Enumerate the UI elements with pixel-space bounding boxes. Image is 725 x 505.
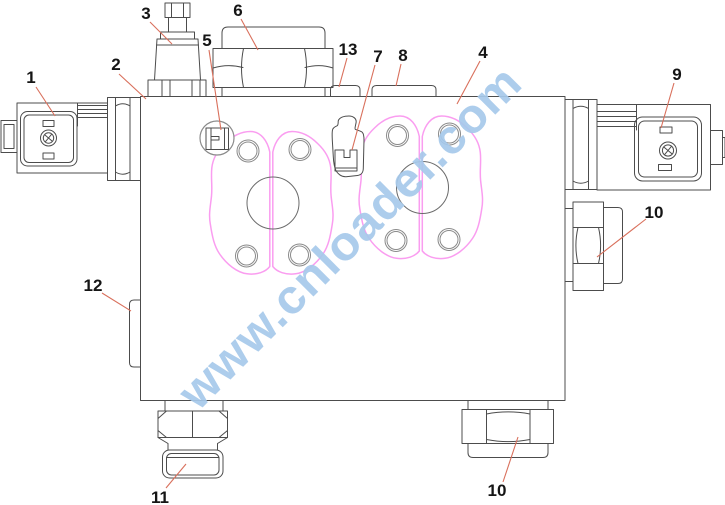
callout-leader-12: [102, 293, 131, 311]
callout-label-2: 2: [111, 55, 120, 74]
mounting-nut-right: [565, 100, 597, 190]
callout-label-6: 6: [233, 1, 242, 20]
drain-plug: [158, 401, 228, 479]
valve-block-diagram: 1235613784910121110 www.cnloader.com: [0, 0, 725, 505]
relief-valve: [148, 3, 206, 97]
coil-connector-right: [711, 131, 723, 165]
callout-label-10: 10: [488, 481, 507, 500]
callout-leader-2: [119, 74, 146, 99]
solenoid-valve-right: [565, 100, 725, 191]
callout-leader-8: [396, 64, 401, 86]
tab-8: [372, 86, 436, 97]
callout-label-10: 10: [645, 203, 664, 222]
callout-label-13: 13: [339, 40, 358, 59]
callout-label-7: 7: [373, 47, 382, 66]
callout-label-4: 4: [478, 43, 488, 62]
hex-cap: [213, 27, 333, 97]
callout-label-9: 9: [672, 65, 681, 84]
callout-label-8: 8: [398, 46, 407, 65]
callout-label-11: 11: [151, 488, 169, 505]
callout-label-12: 12: [84, 276, 103, 295]
diagram-canvas: 1235613784910121110 www.cnloader.com: [0, 0, 725, 505]
fitting-bottom-right: [462, 401, 554, 458]
callout-leader-13: [339, 58, 347, 87]
callout-label-3: 3: [141, 4, 150, 23]
callout-label-5: 5: [202, 31, 211, 50]
fitting-right: [565, 202, 623, 291]
solenoid-valve-left: [1, 98, 141, 181]
coil-connector-left: [1, 121, 17, 153]
plug-detail: [200, 121, 234, 155]
tab-13: [331, 86, 361, 97]
mounting-nut-left: [108, 98, 141, 181]
callout-label-1: 1: [26, 68, 35, 87]
tab-12: [130, 300, 141, 367]
